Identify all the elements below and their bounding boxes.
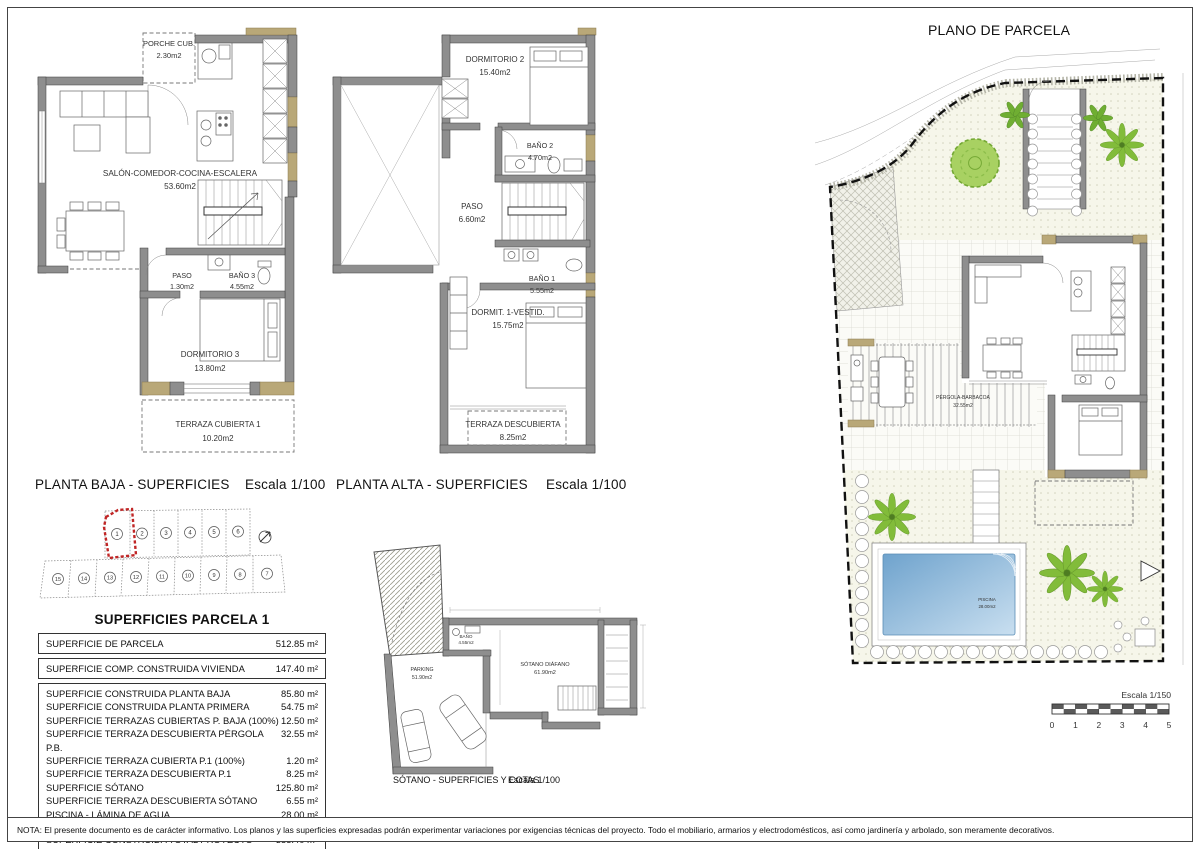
- palm-tree-icon: [1100, 123, 1144, 167]
- pool-label: PISCINA: [978, 597, 996, 602]
- table-row: SUPERFICIE DE PARCELA 512.85 m²: [46, 635, 318, 652]
- paso-area: 1.30m2: [170, 282, 194, 291]
- basement-shelves: [606, 635, 628, 700]
- bed-dormitorio2: [530, 47, 588, 125]
- bano1-label: BAÑO 1: [529, 274, 555, 283]
- ground-floor-scale: Escala 1/100: [245, 477, 325, 492]
- lot-number: 13: [107, 576, 113, 582]
- upper-floor-scale: Escala 1/100: [546, 477, 626, 492]
- salon-area: 53.60m2: [164, 182, 196, 191]
- kitchen-counter: [198, 43, 232, 79]
- pool: PISCINA 28.00m2: [872, 543, 1026, 646]
- table-row-value: 125.80 m²: [276, 781, 318, 794]
- table-row-label: SUPERFICIE TERRAZA DESCUBIERTA PÉRGOLA P…: [46, 727, 281, 754]
- lot-number: 9: [212, 573, 215, 579]
- scale-ticks: 0 1 2 3 4 5: [1050, 720, 1172, 730]
- scale-tick: 4: [1143, 720, 1148, 730]
- vestidor-closet: [450, 277, 467, 349]
- table-box-parcela: SUPERFICIE DE PARCELA 512.85 m²: [38, 633, 326, 654]
- terraza-desc-area: 8.25m2: [500, 433, 527, 442]
- car: [437, 692, 489, 752]
- table-row-value: 32.55 m²: [281, 727, 318, 754]
- ground-floor-title: PLANTA BAJA - SUPERFICIES: [35, 477, 230, 492]
- pergola-area: 32.55m2: [953, 403, 973, 409]
- table-row-value: 512.85 m²: [276, 635, 318, 652]
- basement-ramp-hatch: [374, 545, 444, 656]
- plan-sheet: PORCHE CUB. 2.30m2 SALÓN-COMEDOR-COCINA-…: [0, 0, 1200, 849]
- lots-top-row: [105, 509, 250, 558]
- round-tree-icon: [951, 139, 999, 187]
- table-row-value: 54.75 m²: [281, 700, 318, 713]
- lot-number: 7: [265, 572, 268, 578]
- table-box-vivienda: SUPERFICIE COMP. CONSTRUIDA VIVIENDA 147…: [38, 658, 326, 679]
- table-row-value: 1.20 m²: [286, 754, 318, 767]
- diafano-area: 61.90m2: [534, 670, 556, 676]
- scale-tick: 2: [1096, 720, 1101, 730]
- north-arrow-icon: [259, 531, 271, 543]
- table-row: SUPERFICIE TERRAZA DESCUBIERTA SÓTANO 6.…: [46, 794, 318, 807]
- table-row-value: 147.40 m²: [276, 660, 318, 677]
- dormitorio1-label: DORMIT. 1-VESTID.: [471, 308, 544, 317]
- palm-tree-icon: [868, 493, 916, 541]
- disclaimer-note-text: NOTA: El presente documento es de caráct…: [17, 825, 1054, 835]
- lot-number: 8: [238, 572, 241, 578]
- salon-label: SALÓN-COMEDOR-COCINA-ESCALERA: [103, 168, 258, 178]
- paso-label: PASO: [461, 202, 483, 211]
- table-row-label: SUPERFICIE DE PARCELA: [46, 635, 164, 652]
- basement-stairs: [558, 686, 596, 710]
- table-row-label: SUPERFICIE SÓTANO: [46, 781, 144, 794]
- basement-plan: BAÑO 4.55m2 PARKING 51.90m2 SÓTANO DIÁFA…: [360, 540, 650, 800]
- dining-table: [57, 202, 124, 260]
- table-row: SUPERFICIE TERRAZAS CUBIERTAS P. BAJA (1…: [46, 714, 318, 727]
- bano2-area: 4.70m2: [528, 153, 552, 162]
- bathroom2-fixtures: [498, 130, 582, 173]
- lot-number: 15: [55, 577, 61, 583]
- pool-area: 28.00m2: [978, 604, 996, 609]
- ground-floor-stairs: [198, 180, 282, 245]
- lot-number: 14: [81, 576, 87, 582]
- entrance-stairs: [1023, 81, 1086, 216]
- kitchen-island: [197, 111, 233, 161]
- table-row-label: SUPERFICIE TERRAZAS CUBIERTAS P. BAJA (1…: [46, 714, 279, 727]
- terraza1-label: TERRAZA CUBIERTA 1: [175, 420, 261, 429]
- table-row-label: SUPERFICIE CONSTRUIDA PLANTA PRIMERA: [46, 700, 250, 713]
- dormitorio1-area: 15.75m2: [492, 321, 524, 330]
- scale-label: Escala 1/150: [1121, 690, 1171, 700]
- porche-area: 2.30m2: [156, 51, 181, 60]
- graphic-scale: Escala 1/150 0 1 2 3 4 5: [1050, 688, 1195, 736]
- terraza1-area: 10.20m2: [202, 434, 234, 443]
- bathroom1-fixtures: [461, 249, 582, 309]
- scale-tick: 1: [1073, 720, 1078, 730]
- driveway: [830, 167, 903, 311]
- table-row: SUPERFICIE SÓTANO 125.80 m²: [46, 781, 318, 794]
- porche-label: PORCHE CUB.: [143, 39, 195, 48]
- dormitorio3-label: DORMITORIO 3: [181, 350, 240, 359]
- scale-tick: 3: [1120, 720, 1125, 730]
- basement-scale: Escala 1/100: [508, 775, 560, 785]
- scale-tick: 0: [1050, 720, 1055, 730]
- table-row-label: SUPERFICIE CONSTRUIDA PLANTA BAJA: [46, 687, 230, 700]
- car: [400, 708, 432, 763]
- areas-table-title: SUPERFICIES PARCELA 1: [38, 612, 326, 627]
- table-box-detail: SUPERFICIE CONSTRUIDA PLANTA BAJA 85.80 …: [38, 683, 326, 825]
- dormitorio3-area: 13.80m2: [194, 364, 226, 373]
- paso-area: 6.60m2: [459, 215, 486, 224]
- areas-table: SUPERFICIES PARCELA 1 SUPERFICIE DE PARC…: [38, 612, 326, 849]
- basement-bano-label: BAÑO: [459, 633, 472, 639]
- table-row: SUPERFICIE CONSTRUIDA PLANTA PRIMERA 54.…: [46, 700, 318, 713]
- table-row: SUPERFICIE CONSTRUIDA PLANTA BAJA 85.80 …: [46, 687, 318, 700]
- disclaimer-note: NOTA: El presente documento es de caráct…: [7, 817, 1193, 842]
- table-row-value: 12.50 m²: [281, 714, 318, 727]
- table-row-label: SUPERFICIE TERRAZA CUBIERTA P.1 (100%): [46, 754, 245, 767]
- table-row-value: 85.80 m²: [281, 687, 318, 700]
- table-row: SUPERFICIE TERRAZA CUBIERTA P.1 (100%) 1…: [46, 754, 318, 767]
- lot-number: 10: [185, 574, 191, 580]
- bano2-label: BAÑO 2: [527, 141, 553, 150]
- lot-number: 11: [159, 574, 165, 580]
- pergola-label: PÉRGOLA-BARBACOA: [936, 394, 990, 401]
- paso-label: PASO: [172, 271, 192, 280]
- table-row-label: SUPERFICIE TERRAZA DESCUBIERTA SÓTANO: [46, 794, 257, 807]
- ground-floor-plan: PORCHE CUB. 2.30m2 SALÓN-COMEDOR-COCINA-…: [30, 15, 330, 470]
- diafano-label: SÓTANO DIÁFANO: [520, 661, 570, 668]
- table-row-value: 6.55 m²: [286, 794, 318, 807]
- lot-number: 12: [133, 575, 139, 581]
- garden-pad: [1135, 629, 1155, 646]
- upper-floor-title: PLANTA ALTA - SUPERFICIES: [336, 477, 528, 492]
- palm-tree-icon: [1087, 571, 1123, 607]
- terraza-desc-label: TERRAZA DESCUBIERTA: [465, 420, 561, 429]
- dormitorio2-label: DORMITORIO 2: [466, 55, 525, 64]
- scale-bar: [1052, 704, 1169, 714]
- closet-boxes: [442, 79, 468, 118]
- wardrobe-column: [263, 39, 287, 163]
- parcel-plan: PÉRGOLA-BARBACOA 32.55m2: [815, 15, 1195, 705]
- bano3-label: BAÑO 3: [229, 271, 255, 280]
- double-height-void: [341, 85, 439, 265]
- dormitorio2-area: 15.40m2: [479, 68, 511, 77]
- table-row: SUPERFICIE TERRAZA DESCUBIERTA PÉRGOLA P…: [46, 727, 318, 754]
- sofa: [60, 91, 150, 153]
- lots-diagram: 1 2 3 4 5 6 15 14 13 12 11: [35, 495, 325, 610]
- table-row: SUPERFICIE TERRAZA DESCUBIERTA P.1 8.25 …: [46, 767, 318, 780]
- table-row-label: SUPERFICIE TERRAZA DESCUBIERTA P.1: [46, 767, 231, 780]
- parking-area: 51.90m2: [412, 675, 432, 681]
- table-row: SUPERFICIE COMP. CONSTRUIDA VIVIENDA 147…: [46, 660, 318, 677]
- scale-tick: 5: [1167, 720, 1172, 730]
- parking-label: PARKING: [411, 667, 434, 673]
- bano1-area: 5.55m2: [530, 286, 554, 295]
- upper-floor-stairs: [502, 183, 584, 240]
- bano3-area: 4.55m2: [230, 282, 254, 291]
- upper-floor-plan: DORMITORIO 2 15.40m2 BAÑO 2 4.70m2 PASO …: [330, 15, 630, 470]
- palm-tree-icon: [1039, 545, 1094, 600]
- basement-bano-area: 4.55m2: [458, 640, 474, 645]
- table-row-label: SUPERFICIE COMP. CONSTRUIDA VIVIENDA: [46, 660, 245, 677]
- table-row-value: 8.25 m²: [286, 767, 318, 780]
